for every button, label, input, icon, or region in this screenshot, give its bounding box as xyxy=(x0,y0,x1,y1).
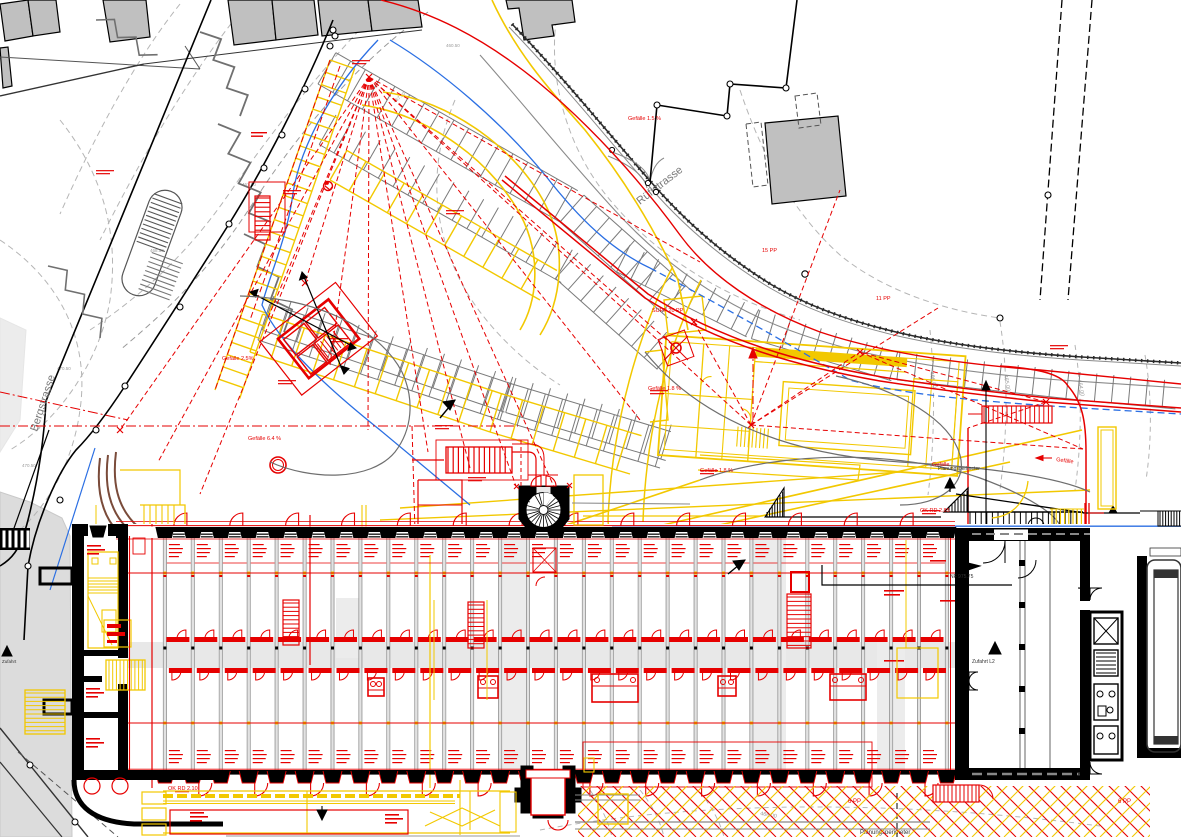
svg-text:OK RD 2.85: OK RD 2.85 xyxy=(920,508,950,514)
svg-text:Gefälle 1.5 %: Gefälle 1.5 % xyxy=(628,116,661,122)
svg-text:Gefälle: Gefälle xyxy=(932,462,949,468)
svg-text:Zufahrt L2: Zufahrt L2 xyxy=(972,659,995,665)
svg-text:6 PP: 6 PP xyxy=(1118,799,1131,805)
svg-text:6 PP: 6 PP xyxy=(848,799,861,805)
svg-text:Zufahrt: Zufahrt xyxy=(2,659,17,664)
svg-text:NF 975.75: NF 975.75 xyxy=(950,574,974,580)
svg-text:Gefälle 6.4 %: Gefälle 6.4 % xyxy=(248,436,281,442)
svg-text:SUPP 20 PP: SUPP 20 PP xyxy=(652,308,684,314)
svg-text:15 PP: 15 PP xyxy=(762,248,777,254)
svg-text:Gefälle 1.8 %: Gefälle 1.8 % xyxy=(700,468,733,474)
svg-text:Gefälle 1.8 %: Gefälle 1.8 % xyxy=(648,386,681,392)
svg-text:Gefälle 2.5%: Gefälle 2.5% xyxy=(222,356,254,362)
svg-text:OK RD 2.10: OK RD 2.10 xyxy=(168,786,198,792)
svg-text:11 PP: 11 PP xyxy=(876,296,891,302)
svg-text:470.50: 470.50 xyxy=(22,463,36,468)
svg-text:460.50: 460.50 xyxy=(446,43,460,48)
